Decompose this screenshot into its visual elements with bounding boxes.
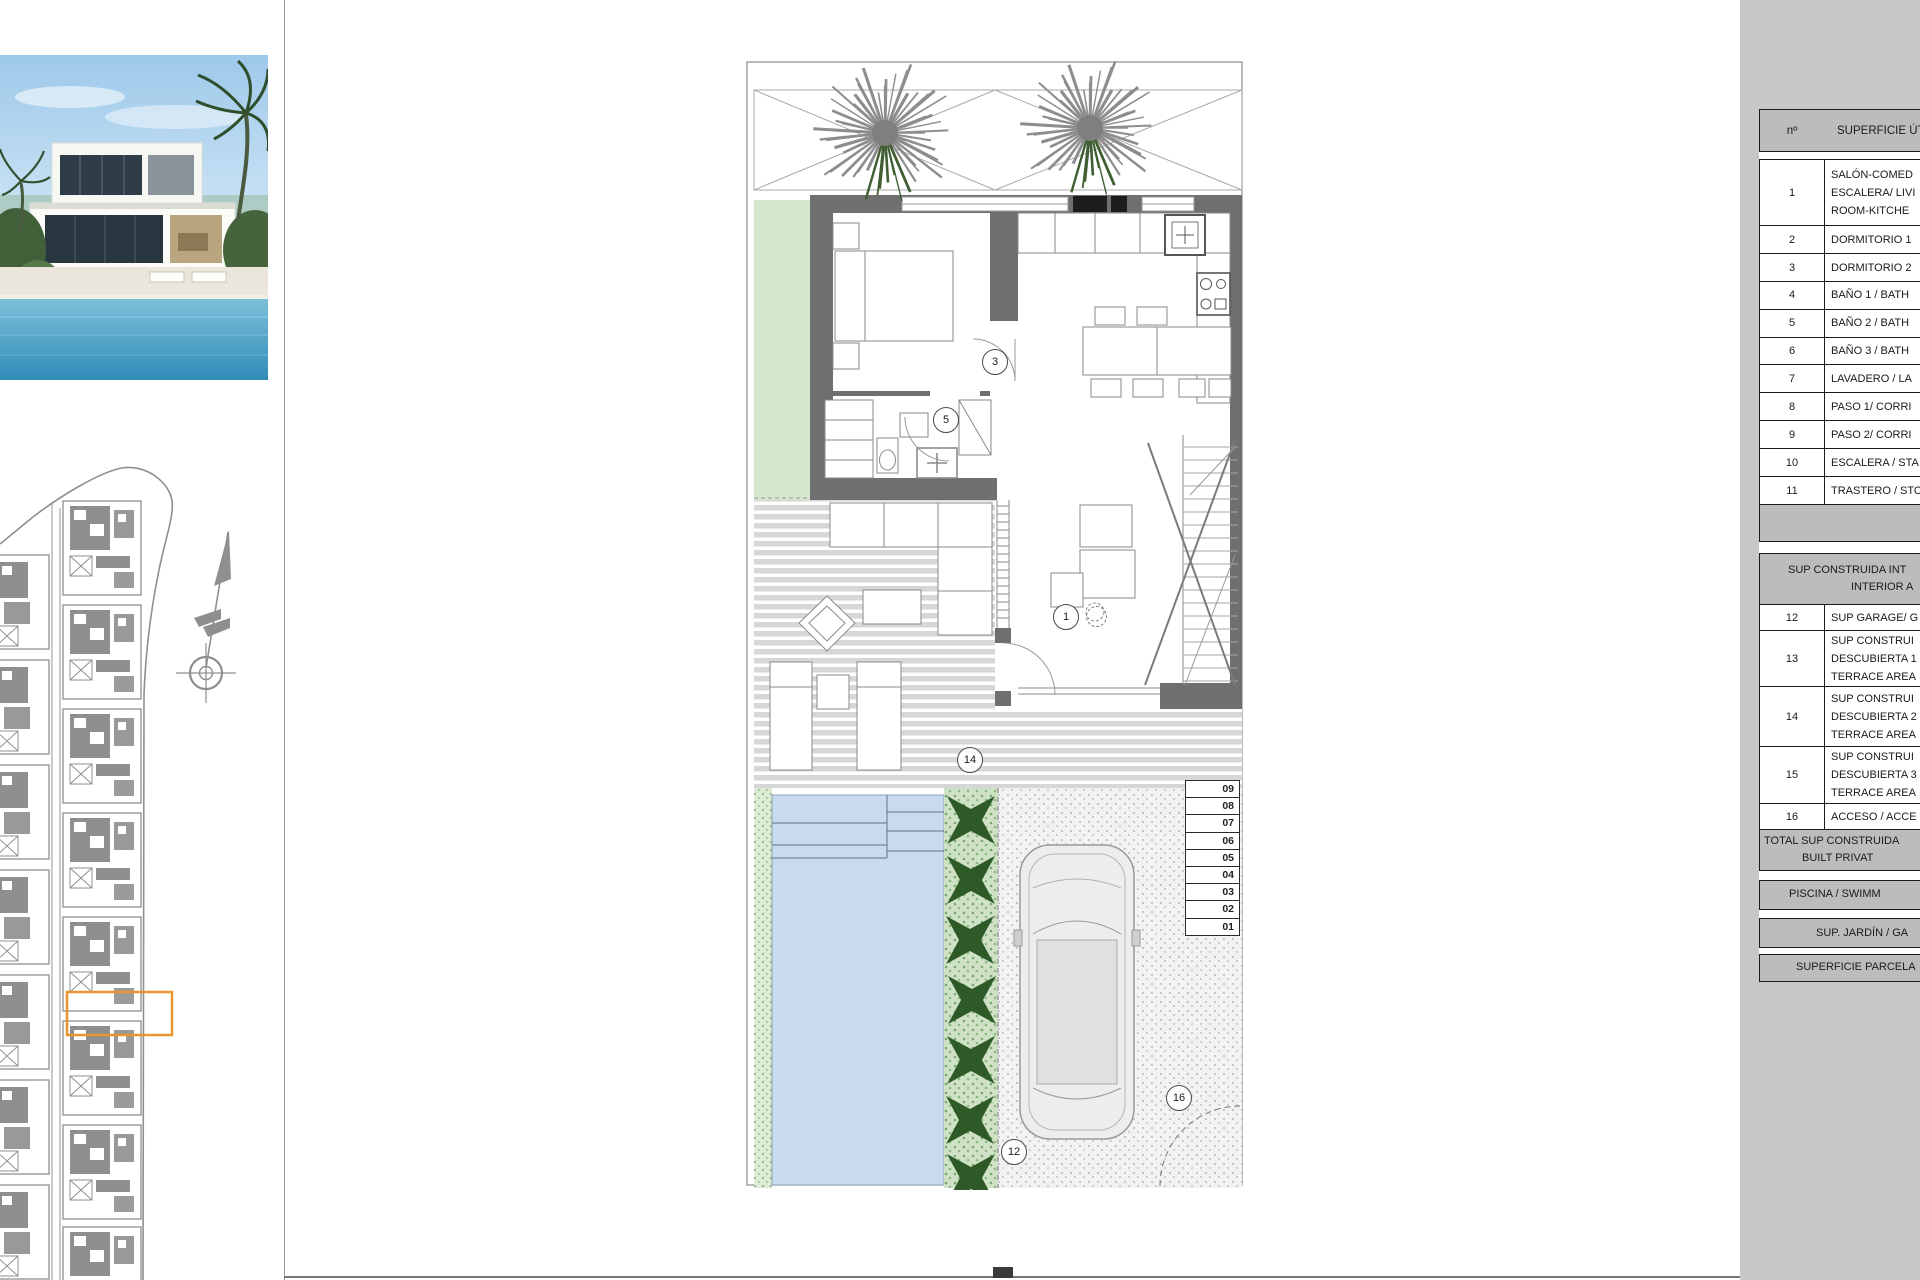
piscina-band: PISCINA / SWIMM: [1759, 880, 1920, 910]
floor-plan: [745, 55, 1245, 1190]
blank-band: [1759, 504, 1920, 542]
row-number: 15: [1760, 747, 1825, 803]
row-number: 1: [1760, 160, 1825, 226]
drawing-sheet: 1 3 5 14 12 16 09 08 07 06 05 04 03 02 0…: [0, 0, 1920, 1280]
cell-line: PASO 2/ CORRI: [1831, 426, 1920, 444]
table-row: 7 LAVADERO / LA: [1759, 364, 1920, 393]
row-number: 3: [1760, 254, 1825, 281]
table-row: 9 PASO 2/ CORRI: [1759, 420, 1920, 449]
cell-line: DORMITORIO 2: [1831, 259, 1920, 277]
cell-line: BAÑO 3 / BATH: [1831, 342, 1920, 360]
plan-palm-tree-icon: [813, 64, 948, 201]
cell-line: ESCALERA/ LIVI: [1831, 184, 1920, 202]
row-number: 8: [1760, 393, 1825, 420]
garden-strip: [754, 200, 810, 500]
table-row: 15 SUP CONSTRUI DESCUBIERTA 3 TERRACE AR…: [1759, 746, 1920, 804]
table-row: 16 ACCESO / ACCE: [1759, 803, 1920, 831]
pool-water: [0, 299, 268, 380]
cooktop: [1197, 273, 1230, 315]
north-arrow-icon: [176, 530, 236, 703]
jardin-band: SUP. JARDÍN / GA: [1759, 918, 1920, 948]
table-row: 11 TRASTERO / STO: [1759, 476, 1920, 505]
cell-line: TERRACE AREA: [1831, 784, 1920, 802]
table-row: 6 BAÑO 3 / BATH: [1759, 337, 1920, 366]
row-number: 11: [1760, 477, 1825, 504]
row-number: 7: [1760, 365, 1825, 392]
cell-line: DESCUBIERTA 1: [1831, 650, 1920, 668]
cell-line: ACCESO / ACCE: [1831, 808, 1920, 826]
table-row: 1 SALÓN-COMED ESCALERA/ LIVI ROOM-KITCHE: [1759, 159, 1920, 227]
room-label-16: 16: [1166, 1085, 1192, 1111]
cell-line: SALÓN-COMED: [1831, 166, 1920, 184]
cell-line: ESCALERA / STA: [1831, 454, 1920, 472]
plan-palm-tree-icon: [1020, 61, 1151, 194]
sheet-divider-line: [284, 0, 285, 1280]
cell-line: DESCUBIERTA 3: [1831, 766, 1920, 784]
cell-line: ROOM-KITCHE: [1831, 202, 1920, 220]
room-label-3: 3: [982, 349, 1008, 375]
cell-line: TERRACE AREA: [1831, 726, 1920, 744]
step-number: 03: [1185, 883, 1240, 901]
row-desc: SALÓN-COMED ESCALERA/ LIVI ROOM-KITCHE: [1825, 160, 1920, 226]
table-row: 4 BAÑO 1 / BATH: [1759, 281, 1920, 310]
table-row: 8 PASO 1/ CORRI: [1759, 392, 1920, 421]
window-band: [902, 196, 1194, 212]
areas-table: nº SUPERFICIE ÚTI 1 SALÓN-COMED ESCALERA…: [1759, 109, 1920, 982]
room-label-dashed: [1086, 606, 1107, 627]
cell-line: TOTAL SUP CONSTRUIDA: [1760, 833, 1920, 850]
table-row: 12 SUP GARAGE/ G: [1759, 604, 1920, 632]
cell-line: LAVADERO / LA: [1831, 370, 1920, 388]
cell-line: TRASTERO / STO: [1831, 482, 1920, 500]
cell-line: SUP CONSTRUI: [1831, 690, 1920, 708]
row-number: 16: [1760, 804, 1825, 830]
table-row: 5 BAÑO 2 / BATH: [1759, 309, 1920, 338]
cell-line: BUILT PRIVAT: [1760, 850, 1920, 867]
row-number: 14: [1760, 687, 1825, 747]
room-label-1: 1: [1053, 604, 1079, 630]
swimming-pool: [772, 795, 944, 1185]
cell-line: SUP CONSTRUI: [1831, 632, 1920, 650]
cell-line: BAÑO 1 / BATH: [1831, 286, 1920, 304]
row-number: 13: [1760, 631, 1825, 686]
cell-line: PISCINA / SWIMM: [1760, 886, 1920, 903]
header-number-col: nº: [1760, 125, 1824, 137]
room-label-5: 5: [933, 407, 959, 433]
row-number: 10: [1760, 449, 1825, 476]
parcela-band: SUPERFICIE PARCELA: [1759, 954, 1920, 982]
sheet-bottom-mark: [993, 1267, 1013, 1278]
table-header: nº SUPERFICIE ÚTI: [1759, 109, 1920, 152]
table-row: 10 ESCALERA / STA: [1759, 448, 1920, 477]
cell-line: INTERIOR A: [1760, 579, 1920, 596]
cell-line: DORMITORIO 1: [1831, 231, 1920, 249]
row-number: 9: [1760, 421, 1825, 448]
step-number: 06: [1185, 832, 1240, 850]
cell-line: SUP CONSTRUI: [1831, 748, 1920, 766]
table-row: 14 SUP CONSTRUI DESCUBIERTA 2 TERRACE AR…: [1759, 686, 1920, 748]
cell-line: SUPERFICIE PARCELA: [1760, 959, 1920, 976]
row-number: 6: [1760, 338, 1825, 365]
cell-line: PASO 1/ CORRI: [1831, 398, 1920, 416]
row-number: 5: [1760, 310, 1825, 337]
step-number: 08: [1185, 797, 1240, 815]
header-label-col: SUPERFICIE ÚTI: [1824, 125, 1920, 137]
row-number: 12: [1760, 605, 1825, 631]
step-number: 04: [1185, 866, 1240, 884]
pool-side-green: [754, 788, 772, 1188]
table-row: 2 DORMITORIO 1: [1759, 225, 1920, 254]
cell-line: BAÑO 2 / BATH: [1831, 314, 1920, 332]
measurements-panel: nº SUPERFICIE ÚTI 1 SALÓN-COMED ESCALERA…: [1740, 0, 1920, 1280]
wardrobe: [825, 400, 873, 478]
room-label-12: 12: [1001, 1139, 1027, 1165]
row-number: 4: [1760, 282, 1825, 309]
row-number: 2: [1760, 226, 1825, 253]
table-row: 13 SUP CONSTRUI DESCUBIERTA 1 TERRACE AR…: [1759, 630, 1920, 687]
room-label-14: 14: [957, 747, 983, 773]
step-number: 09: [1185, 780, 1240, 798]
cell-line: SUP GARAGE/ G: [1831, 609, 1920, 627]
total-band: TOTAL SUP CONSTRUIDA BUILT PRIVAT: [1759, 829, 1920, 871]
step-number: 07: [1185, 814, 1240, 832]
stair-step-numbers: 09 08 07 06 05 04 03 02 01: [1185, 781, 1240, 936]
section-title: SUP CONSTRUIDA INT INTERIOR A: [1759, 553, 1920, 605]
site-plan: [0, 404, 275, 1280]
car-top-view: [1014, 845, 1140, 1139]
pool-edge: [0, 295, 268, 299]
cell-line: DESCUBIERTA 2: [1831, 708, 1920, 726]
step-number: 02: [1185, 900, 1240, 918]
table-row: 3 DORMITORIO 2: [1759, 253, 1920, 282]
cell-line: SUP. JARDÍN / GA: [1760, 925, 1920, 942]
cell-line: SUP CONSTRUIDA INT: [1760, 562, 1920, 579]
villa-photo: [0, 55, 268, 380]
kitchen-sink: [1165, 215, 1205, 255]
cell-line: TERRACE AREA: [1831, 668, 1920, 686]
step-number: 01: [1185, 918, 1240, 936]
step-number: 05: [1185, 849, 1240, 867]
